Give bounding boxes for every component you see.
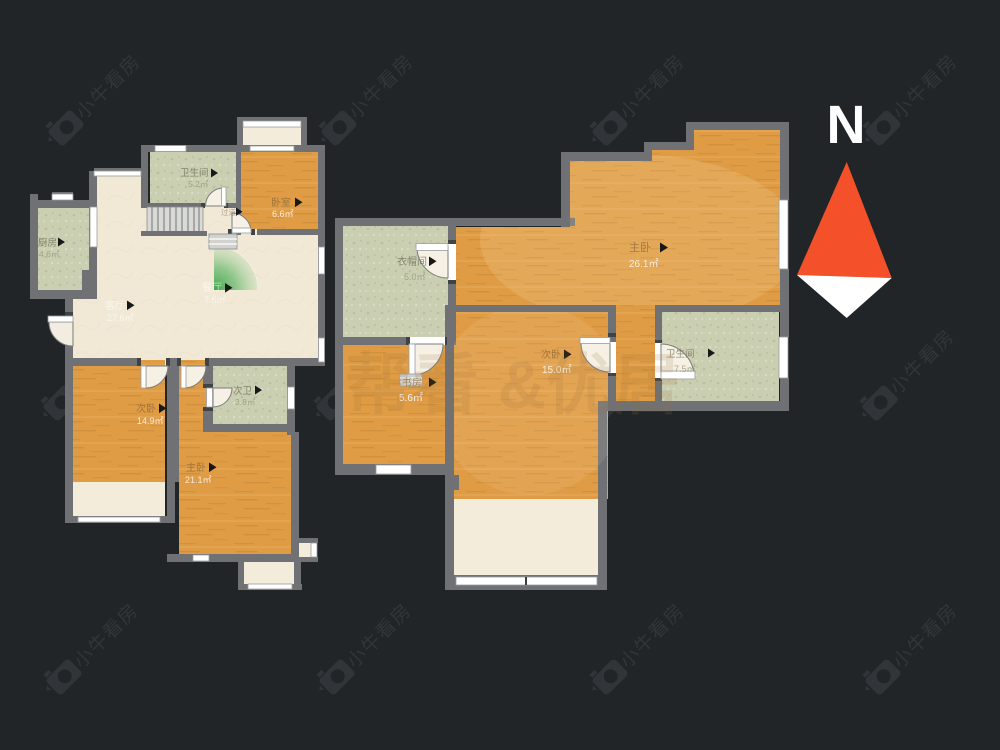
- svg-text:主卧: 主卧: [186, 461, 206, 474]
- svg-text:卫生间: 卫生间: [180, 167, 209, 179]
- svg-text:27.6㎡: 27.6㎡: [107, 313, 134, 323]
- svg-text:厨房: 厨房: [38, 237, 57, 249]
- svg-text:21.1㎡: 21.1㎡: [185, 475, 212, 485]
- svg-text:6.6㎡: 6.6㎡: [272, 209, 294, 219]
- svg-text:5.0㎡: 5.0㎡: [404, 272, 426, 282]
- svg-text:过道: 过道: [221, 207, 236, 217]
- svg-text:客厅: 客厅: [105, 299, 125, 312]
- svg-text:14.9㎡: 14.9㎡: [137, 416, 164, 426]
- svg-text:5.2㎡: 5.2㎡: [188, 179, 209, 189]
- svg-text:N: N: [827, 95, 866, 155]
- svg-text:7.6㎡: 7.6㎡: [204, 295, 226, 305]
- svg-text:26.1㎡: 26.1㎡: [629, 258, 658, 270]
- svg-text:主卧: 主卧: [629, 241, 651, 254]
- svg-text:帮看 &优居: 帮看 &优居: [345, 348, 680, 423]
- svg-text:3.8㎡: 3.8㎡: [235, 397, 256, 407]
- svg-text:卧室: 卧室: [271, 196, 291, 209]
- svg-text:衣帽间: 衣帽间: [397, 255, 427, 268]
- svg-text:4.6㎡: 4.6㎡: [39, 249, 60, 259]
- svg-text:餐厅: 餐厅: [202, 281, 222, 294]
- svg-text:次卧: 次卧: [136, 402, 156, 415]
- svg-text:次卫: 次卫: [233, 385, 253, 397]
